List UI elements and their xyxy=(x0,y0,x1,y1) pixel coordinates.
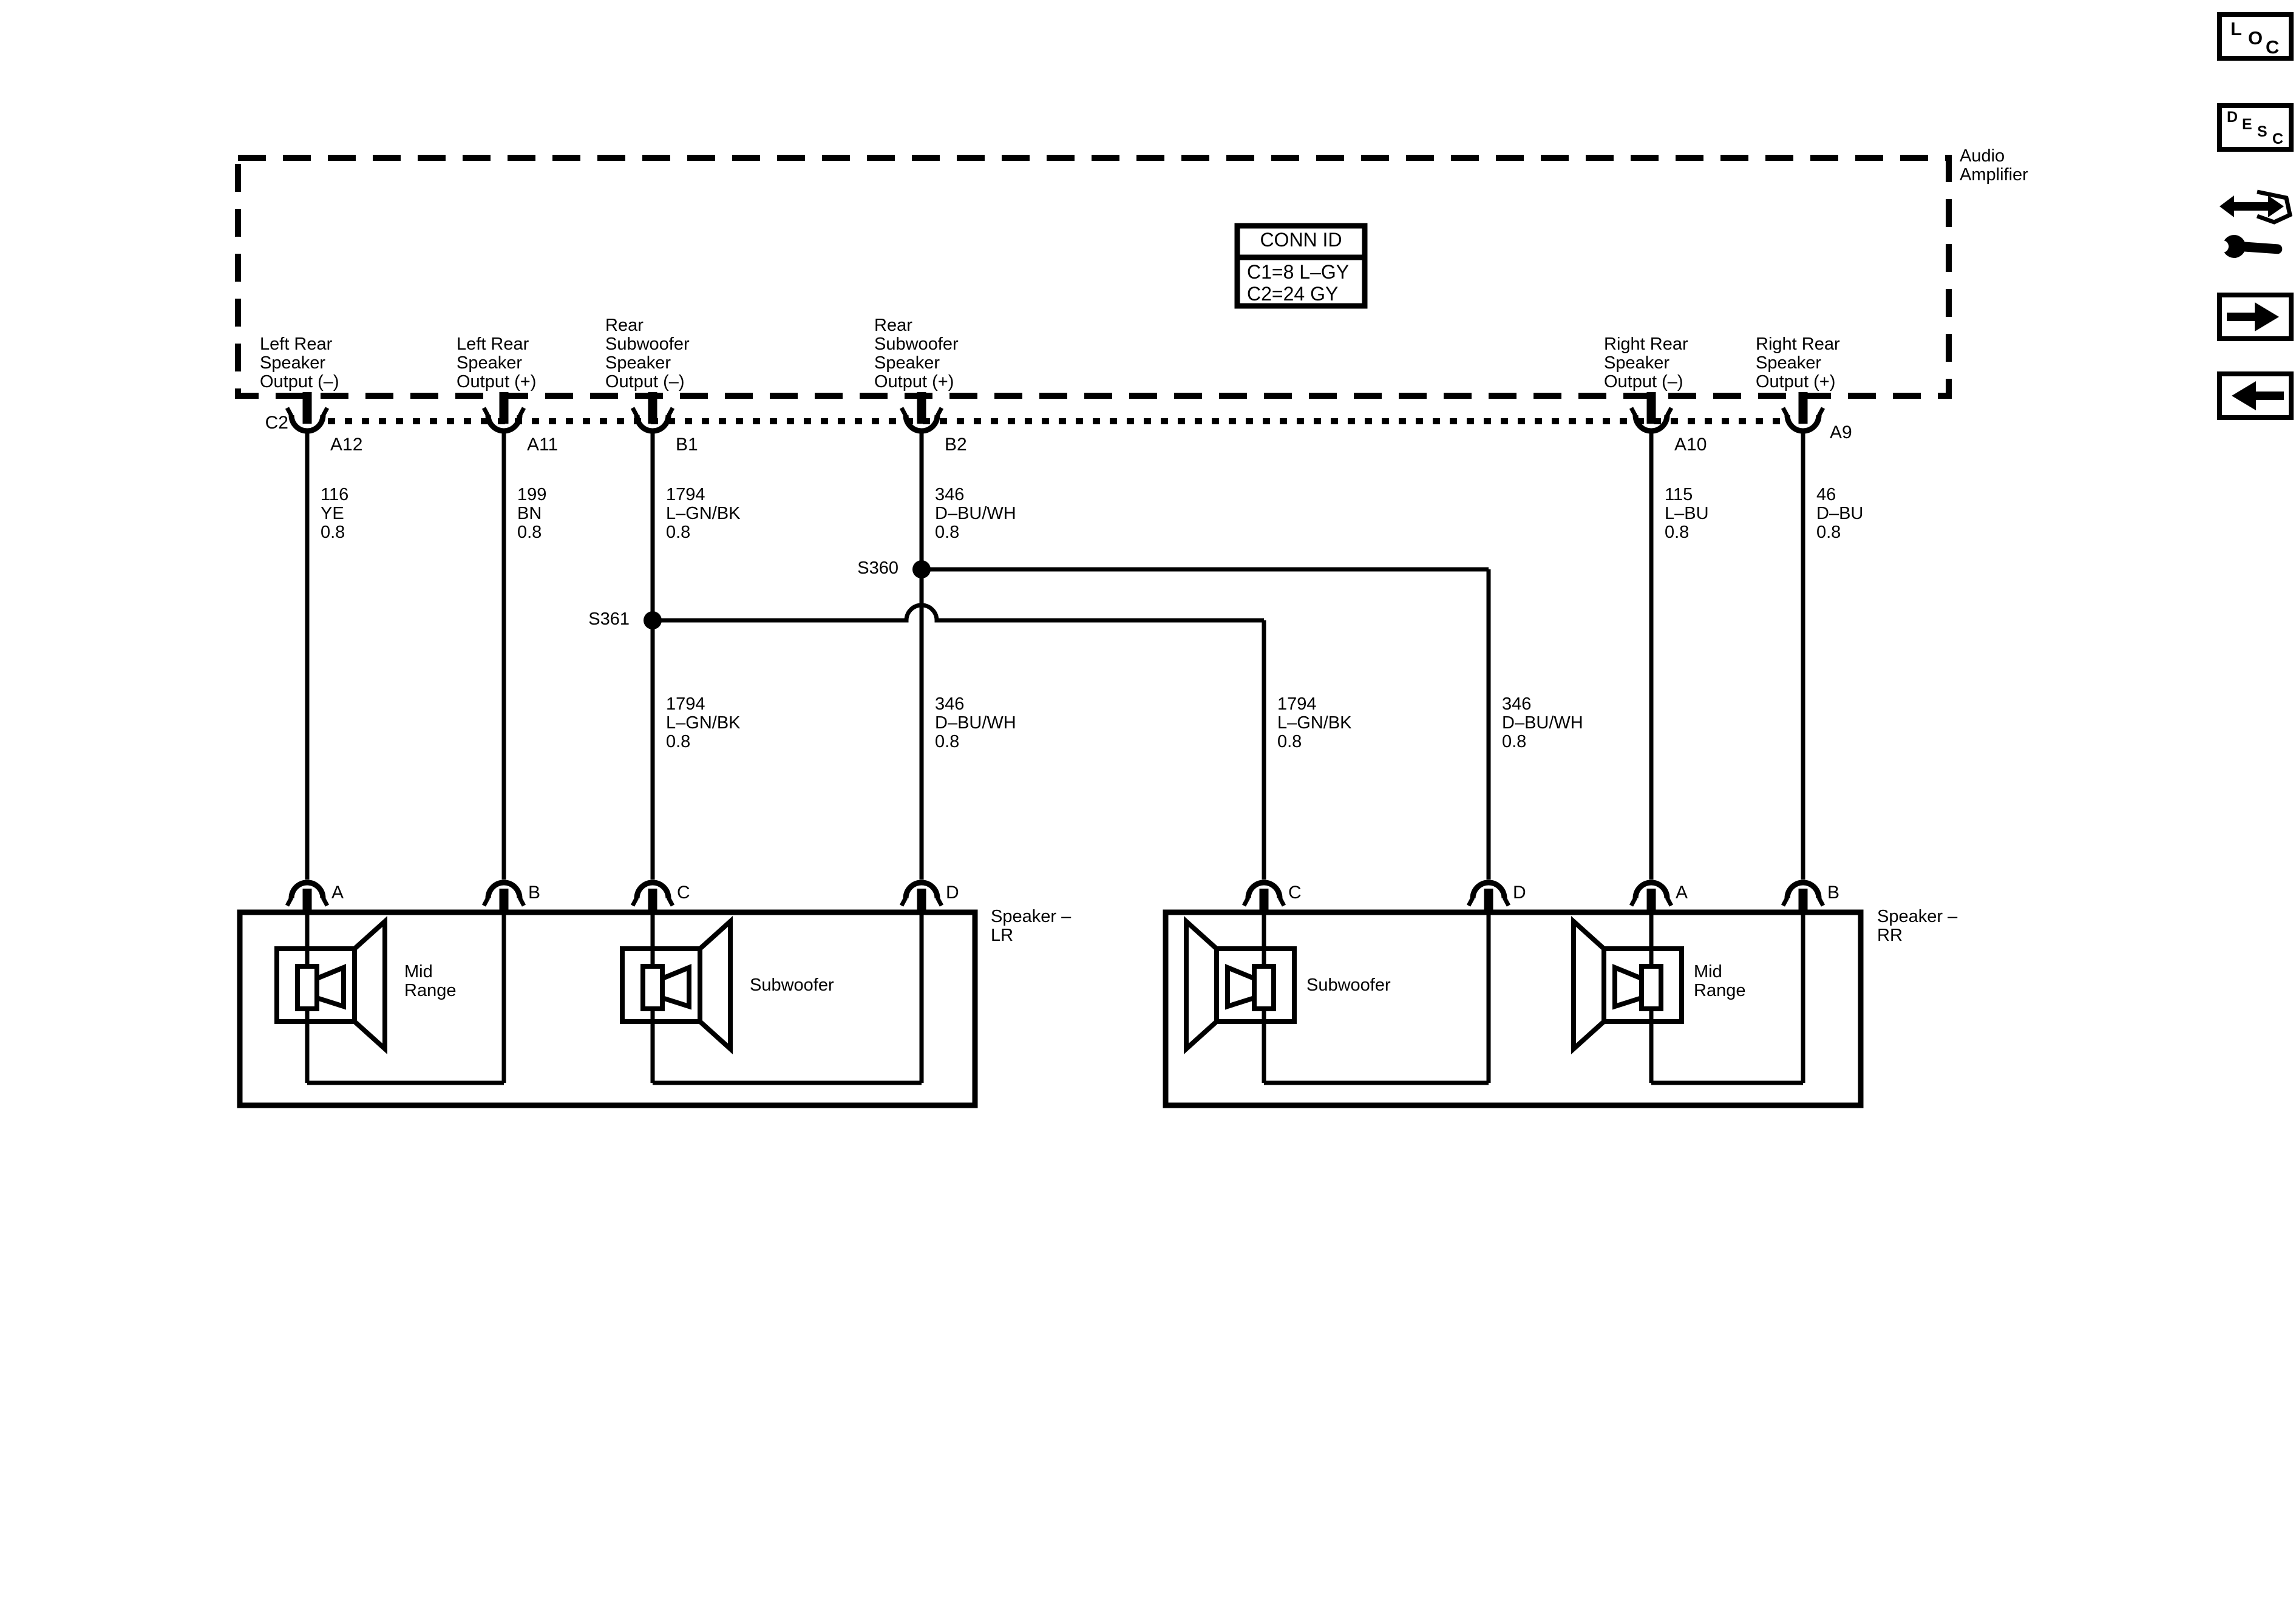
lr-pin-c: C xyxy=(677,884,690,902)
conn-id-row2: C2=24 GY xyxy=(1247,283,1338,305)
connector-id-c2: C2 xyxy=(234,414,288,432)
s361-splice-run xyxy=(653,605,1264,620)
lr-pin-b: B xyxy=(528,884,540,902)
rr-midrange-label: Mid Range xyxy=(1694,963,1745,1000)
speaker-lr-title: Speaker – LR xyxy=(991,907,1071,945)
back-arrow-button[interactable] xyxy=(2217,371,2294,420)
right-arrow-icon xyxy=(2222,297,2289,336)
output-label-a9: Right Rear Speaker Output (+) xyxy=(1756,335,1840,392)
conn-id-row1: C1=8 L–GY xyxy=(1247,261,1349,283)
output-label-a10: Right Rear Speaker Output (–) xyxy=(1604,335,1688,392)
wire-spec-116-ye: 116 YE 0.8 xyxy=(321,486,348,542)
wire-spec-1794-lr: 1794 L–GN/BK 0.8 xyxy=(666,695,741,751)
rr-pin-a: A xyxy=(1676,884,1688,902)
wire-spec-115-lbu: 115 L–BU 0.8 xyxy=(1665,486,1709,542)
output-label-a12: Left Rear Speaker Output (–) xyxy=(260,335,339,392)
output-label-b2: Rear Subwoofer Speaker Output (+) xyxy=(874,316,959,392)
wire-spec-346-rr: 346 D–BU/WH 0.8 xyxy=(1502,695,1583,751)
pin-id-a12: A12 xyxy=(330,436,362,454)
diagram-linework xyxy=(0,0,2296,1617)
pin-id-a11: A11 xyxy=(527,436,558,454)
splice-label-s361: S361 xyxy=(538,610,630,629)
rr-pin-c: C xyxy=(1288,884,1302,902)
lr-midrange-label: Mid Range xyxy=(404,963,456,1000)
rr-subwoofer-label: Subwoofer xyxy=(1306,976,1391,995)
rr-pin-d: D xyxy=(1513,884,1526,902)
pin-id-a9: A9 xyxy=(1830,424,1852,442)
pin-id-b2: B2 xyxy=(945,436,967,454)
desc-button[interactable]: DESC xyxy=(2217,103,2294,152)
output-label-b1: Rear Subwoofer Speaker Output (–) xyxy=(605,316,690,392)
wire-spec-346-upper: 346 D–BU/WH 0.8 xyxy=(935,486,1016,542)
pin-id-a10: A10 xyxy=(1674,436,1707,454)
wire-spec-46-dbu: 46 D–BU 0.8 xyxy=(1816,486,1863,542)
wire-spec-346-lr: 346 D–BU/WH 0.8 xyxy=(935,695,1016,751)
wire-spec-1794-rr: 1794 L–GN/BK 0.8 xyxy=(1277,695,1352,751)
loc-button[interactable]: LOC xyxy=(2217,12,2294,61)
pin-id-b1: B1 xyxy=(676,436,698,454)
lr-pin-d: D xyxy=(946,884,959,902)
wiring-tool-icon[interactable] xyxy=(2217,188,2294,271)
wire-spec-199-bn: 199 BN 0.8 xyxy=(517,486,546,542)
splice-s361-dot xyxy=(644,611,662,629)
wire-spec-1794-upper: 1794 L–GN/BK 0.8 xyxy=(666,486,741,542)
left-arrow-icon xyxy=(2222,376,2289,415)
lr-subwoofer-label: Subwoofer xyxy=(750,976,834,995)
output-label-a11: Left Rear Speaker Output (+) xyxy=(457,335,536,392)
speaker-lr-box xyxy=(240,912,975,1105)
speaker-rr-title: Speaker – RR xyxy=(1877,907,1957,945)
splice-s360-dot xyxy=(912,560,931,578)
wiring-diagram-page: Audio Amplifier CONN ID C1=8 L–GY C2=24 … xyxy=(0,0,2296,1617)
lr-pin-a: A xyxy=(331,884,344,902)
splice-label-s360: S360 xyxy=(807,559,898,578)
amplifier-title: Audio Amplifier xyxy=(1960,147,2028,185)
rr-pin-b: B xyxy=(1827,884,1839,902)
conn-id-title: CONN ID xyxy=(1237,231,1365,249)
speaker-rr-box xyxy=(1166,912,1861,1105)
next-arrow-button[interactable] xyxy=(2217,293,2294,341)
